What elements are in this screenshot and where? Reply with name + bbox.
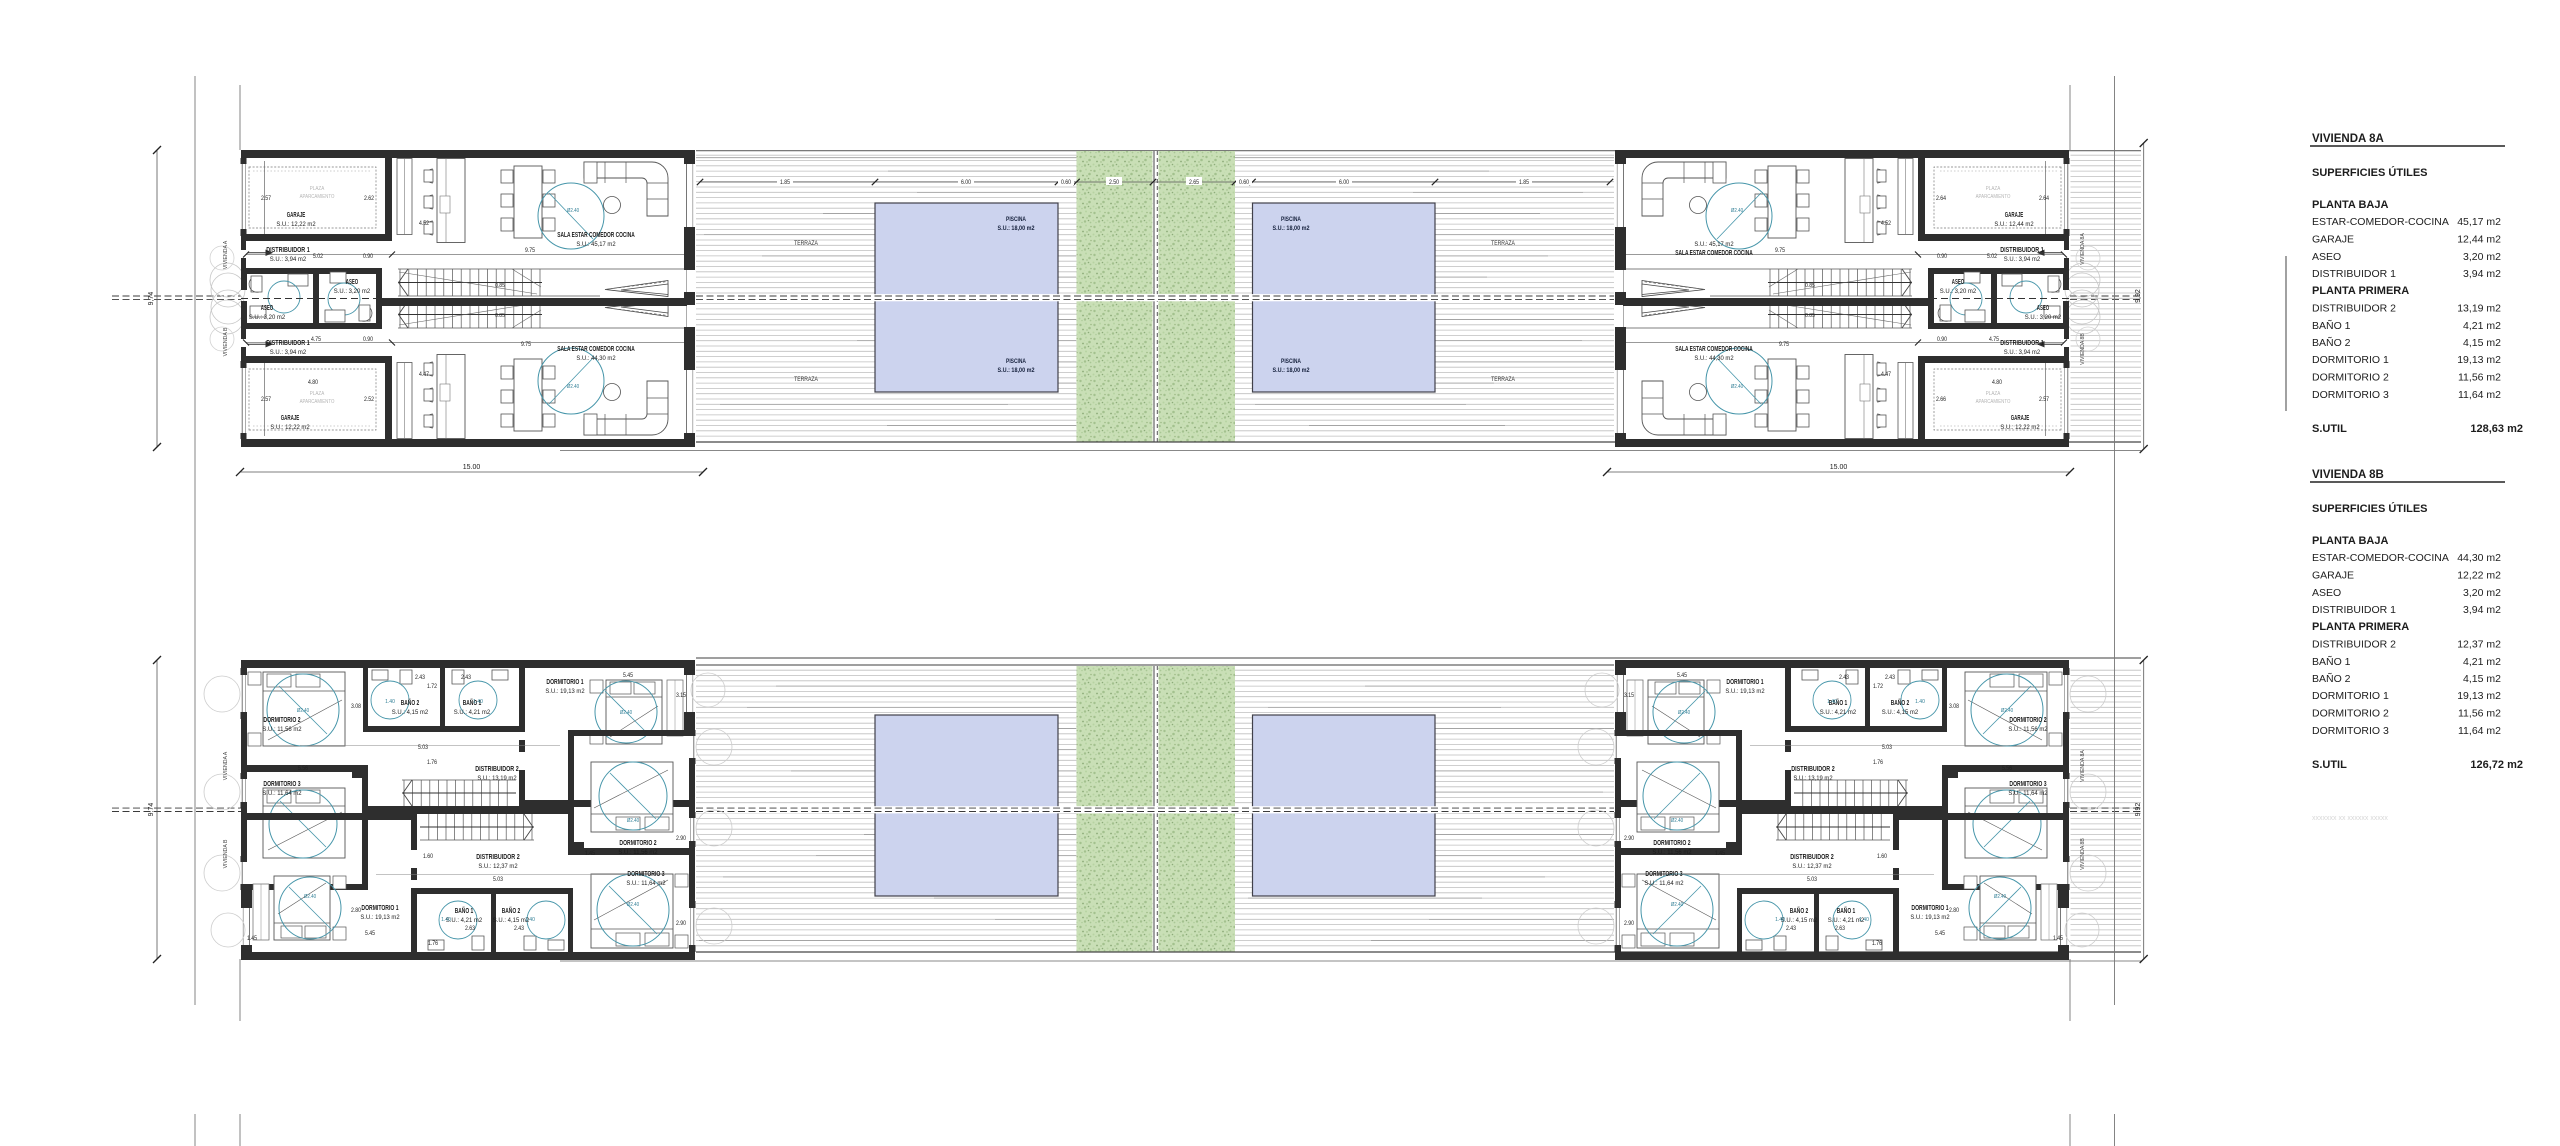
svg-text:2.52: 2.52 xyxy=(364,396,374,403)
svg-text:5.02: 5.02 xyxy=(313,253,323,260)
svg-text:Ø2.40: Ø2.40 xyxy=(627,902,639,908)
svg-text:Ø2.40: Ø2.40 xyxy=(567,384,579,390)
svg-text:4.80: 4.80 xyxy=(1992,379,2002,386)
svg-text:ASEO: ASEO xyxy=(261,305,274,312)
svg-text:VIVIENDA 8A: VIVIENDA 8A xyxy=(2080,750,2086,782)
svg-text:VIVIENDA 8A: VIVIENDA 8A xyxy=(2080,233,2086,265)
svg-text:S.U.: 3,94 m2: S.U.: 3,94 m2 xyxy=(2004,256,2041,263)
svg-text:DISTRIBUIDOR 1: DISTRIBUIDOR 1 xyxy=(266,340,309,347)
svg-text:DISTRIBUIDOR 2: DISTRIBUIDOR 2 xyxy=(1791,766,1834,773)
svg-text:S.U.: 4,15 m2: S.U.: 4,15 m2 xyxy=(1781,917,1818,924)
svg-text:DORMITORIO 2: DORMITORIO 2 xyxy=(1653,840,1690,847)
svg-text:126,72 m2: 126,72 m2 xyxy=(2470,759,2523,771)
svg-text:GARAJE: GARAJE xyxy=(2312,570,2354,582)
svg-text:DORMITORIO 2: DORMITORIO 2 xyxy=(2312,372,2389,384)
svg-text:1.40: 1.40 xyxy=(525,917,535,923)
svg-text:VIVIENDA A: VIVIENDA A xyxy=(223,240,229,269)
svg-text:VIVIENDA B: VIVIENDA B xyxy=(223,327,229,356)
svg-text:Ø2.40: Ø2.40 xyxy=(1731,208,1743,214)
svg-text:4.75: 4.75 xyxy=(311,336,321,343)
svg-text:DISTRIBUIDOR 1: DISTRIBUIDOR 1 xyxy=(2000,247,2043,254)
svg-text:S.U.: 4,21 m2: S.U.: 4,21 m2 xyxy=(454,709,491,716)
svg-text:5.45: 5.45 xyxy=(1677,672,1687,679)
svg-text:S.U.: 4,21 m2: S.U.: 4,21 m2 xyxy=(1820,709,1857,716)
svg-text:S.U.: 11,64 m2: S.U.: 11,64 m2 xyxy=(2008,790,2047,797)
svg-text:2.90: 2.90 xyxy=(676,920,686,927)
svg-text:2.62: 2.62 xyxy=(364,195,374,202)
svg-text:5.03: 5.03 xyxy=(493,876,503,883)
svg-text:SUPERFICIES ÚTILES: SUPERFICIES ÚTILES xyxy=(2312,166,2428,179)
svg-text:2.80: 2.80 xyxy=(1949,907,1959,914)
svg-text:4,21 m2: 4,21 m2 xyxy=(2463,656,2501,668)
svg-text:2.57: 2.57 xyxy=(261,396,271,403)
svg-text:2.43: 2.43 xyxy=(415,674,425,681)
svg-text:ESTAR-COMEDOR-COCINA: ESTAR-COMEDOR-COCINA xyxy=(2312,216,2449,228)
svg-text:2.65: 2.65 xyxy=(1189,179,1199,186)
svg-text:1.40: 1.40 xyxy=(385,699,395,705)
svg-text:S.UTIL: S.UTIL xyxy=(2312,759,2347,771)
svg-text:DORMITORIO 3: DORMITORIO 3 xyxy=(2009,781,2046,788)
svg-text:Ø2.40: Ø2.40 xyxy=(1731,384,1743,390)
svg-text:S.U.: 11,56 m2: S.U.: 11,56 m2 xyxy=(618,849,657,856)
svg-text:1.85: 1.85 xyxy=(1519,179,1529,186)
svg-text:DORMITORIO 1: DORMITORIO 1 xyxy=(1726,679,1763,686)
svg-text:5.03: 5.03 xyxy=(418,744,428,751)
svg-text:4,15 m2: 4,15 m2 xyxy=(2463,673,2501,685)
svg-text:Ø2.40: Ø2.40 xyxy=(1671,902,1683,908)
svg-text:9,74: 9,74 xyxy=(148,803,155,817)
svg-text:Ø2.40: Ø2.40 xyxy=(620,710,632,716)
svg-text:5.45: 5.45 xyxy=(365,930,375,937)
svg-text:9.75: 9.75 xyxy=(521,341,531,348)
svg-text:DISTRIBUIDOR 1: DISTRIBUIDOR 1 xyxy=(2312,268,2396,280)
svg-text:VIVIENDA 8B: VIVIENDA 8B xyxy=(2080,838,2086,870)
svg-text:DORMITORIO 1: DORMITORIO 1 xyxy=(2312,690,2389,702)
svg-text:3.15: 3.15 xyxy=(676,692,686,699)
svg-text:DORMITORIO 1: DORMITORIO 1 xyxy=(1911,905,1948,912)
svg-text:2.90: 2.90 xyxy=(1624,835,1634,842)
svg-text:12,37 m2: 12,37 m2 xyxy=(2457,639,2501,651)
svg-text:2.64: 2.64 xyxy=(1936,195,1946,202)
svg-text:ASEO: ASEO xyxy=(1952,279,1965,286)
svg-text:S.U.: 11,64 m2: S.U.: 11,64 m2 xyxy=(626,880,665,887)
svg-text:PISCINA: PISCINA xyxy=(1006,216,1026,223)
svg-text:44,30 m2: 44,30 m2 xyxy=(2457,552,2501,564)
svg-text:9,92: 9,92 xyxy=(2135,803,2142,817)
svg-text:DORMITORIO 2: DORMITORIO 2 xyxy=(263,717,300,724)
svg-text:S.U.: 3,94 m2: S.U.: 3,94 m2 xyxy=(270,349,307,356)
svg-text:ASEO: ASEO xyxy=(2037,305,2050,312)
svg-text:Ø2.40: Ø2.40 xyxy=(297,708,309,714)
svg-text:DISTRIBUIDOR 2: DISTRIBUIDOR 2 xyxy=(1790,854,1833,861)
svg-text:BAÑO 1: BAÑO 1 xyxy=(2312,655,2351,668)
svg-text:DORMITORIO 2: DORMITORIO 2 xyxy=(2009,717,2046,724)
svg-text:2.50: 2.50 xyxy=(1109,179,1119,186)
svg-text:BAÑO 2: BAÑO 2 xyxy=(1891,698,1910,707)
svg-text:5.56: 5.56 xyxy=(298,765,308,772)
svg-text:1.40: 1.40 xyxy=(1915,699,1925,705)
svg-text:GARAJE: GARAJE xyxy=(2011,415,2030,422)
svg-text:9.75: 9.75 xyxy=(1779,341,1789,348)
svg-text:BAÑO 1: BAÑO 1 xyxy=(455,906,474,915)
svg-text:3,94 m2: 3,94 m2 xyxy=(2463,604,2501,616)
svg-text:S.U.: 12,37 m2: S.U.: 12,37 m2 xyxy=(1792,863,1831,870)
svg-text:S.U.: 12,22 m2: S.U.: 12,22 m2 xyxy=(276,221,315,228)
svg-text:4.80: 4.80 xyxy=(308,379,318,386)
svg-text:1.40: 1.40 xyxy=(1775,917,1785,923)
svg-text:S.U.: 11,56 m2: S.U.: 11,56 m2 xyxy=(1652,849,1691,856)
svg-text:5.56: 5.56 xyxy=(2002,765,2012,772)
svg-text:2.43: 2.43 xyxy=(1839,674,1849,681)
svg-text:TERRAZA: TERRAZA xyxy=(794,376,819,383)
svg-text:S.U.: 3,20 m2: S.U.: 3,20 m2 xyxy=(1940,288,1977,295)
svg-text:11,64 m2: 11,64 m2 xyxy=(2458,725,2501,737)
svg-text:6.00: 6.00 xyxy=(961,179,971,186)
svg-text:GARAJE: GARAJE xyxy=(281,415,300,422)
svg-text:DISTRIBUIDOR 2: DISTRIBUIDOR 2 xyxy=(2312,303,2396,315)
svg-text:GARAJE: GARAJE xyxy=(2312,234,2354,246)
svg-text:ASEO: ASEO xyxy=(346,279,359,286)
svg-text:DISTRIBUIDOR 2: DISTRIBUIDOR 2 xyxy=(476,854,519,861)
svg-text:1.60: 1.60 xyxy=(423,853,433,860)
svg-text:S.U.: 18,00 m2: S.U.: 18,00 m2 xyxy=(1272,367,1309,374)
svg-text:BAÑO 2: BAÑO 2 xyxy=(401,698,420,707)
svg-text:TERRAZA: TERRAZA xyxy=(1491,240,1516,247)
svg-text:S.U.: 4,21 m2: S.U.: 4,21 m2 xyxy=(446,917,483,924)
svg-text:Ø2.40: Ø2.40 xyxy=(1671,818,1683,824)
svg-text:DORMITORIO 1: DORMITORIO 1 xyxy=(2312,354,2389,366)
svg-text:1.45: 1.45 xyxy=(585,850,595,857)
svg-text:4.75: 4.75 xyxy=(1989,336,1999,343)
svg-text:1.72: 1.72 xyxy=(1873,683,1883,690)
svg-text:BAÑO 2: BAÑO 2 xyxy=(2312,336,2351,349)
svg-text:4.47: 4.47 xyxy=(1881,371,1891,378)
svg-text:4.47: 4.47 xyxy=(419,371,429,378)
svg-text:S.U.: 4,15 m2: S.U.: 4,15 m2 xyxy=(493,917,530,924)
svg-text:S.U.: 11,64 m2: S.U.: 11,64 m2 xyxy=(1644,880,1683,887)
svg-text:S.UTIL: S.UTIL xyxy=(2312,423,2347,435)
svg-text:1.40: 1.40 xyxy=(473,699,483,705)
svg-text:15.00: 15.00 xyxy=(1830,464,1848,471)
svg-text:11,56 m2: 11,56 m2 xyxy=(2458,372,2501,384)
svg-text:4,15 m2: 4,15 m2 xyxy=(2463,337,2501,349)
svg-text:ASEO: ASEO xyxy=(2312,587,2341,599)
svg-text:S.U.: 44,30 m2: S.U.: 44,30 m2 xyxy=(576,355,615,362)
svg-text:BAÑO 1: BAÑO 1 xyxy=(1837,906,1856,915)
svg-text:128,63 m2: 128,63 m2 xyxy=(2470,423,2523,435)
svg-text:11,64 m2: 11,64 m2 xyxy=(2458,389,2501,401)
svg-text:S.U.: 18,00 m2: S.U.: 18,00 m2 xyxy=(1272,225,1309,232)
svg-text:9.75: 9.75 xyxy=(525,247,535,254)
svg-text:S.U.: 44,30 m2: S.U.: 44,30 m2 xyxy=(1694,355,1733,362)
svg-text:3.08: 3.08 xyxy=(351,703,361,710)
svg-text:2.80: 2.80 xyxy=(351,907,361,914)
svg-text:DISTRIBUIDOR 1: DISTRIBUIDOR 1 xyxy=(266,247,309,254)
svg-text:2.57: 2.57 xyxy=(261,195,271,202)
svg-text:ESTAR-COMEDOR-COCINA: ESTAR-COMEDOR-COCINA xyxy=(2312,552,2449,564)
svg-text:APARCAMIENTO: APARCAMIENTO xyxy=(300,399,335,405)
svg-text:4.52: 4.52 xyxy=(419,220,429,227)
svg-text:13,19 m2: 13,19 m2 xyxy=(2457,303,2501,315)
svg-text:PLAZA: PLAZA xyxy=(310,186,325,192)
svg-text:S.U.: 18,00 m2: S.U.: 18,00 m2 xyxy=(997,225,1034,232)
svg-text:1.45: 1.45 xyxy=(1715,850,1725,857)
svg-text:5.03: 5.03 xyxy=(1882,744,1892,751)
svg-text:0.60: 0.60 xyxy=(1061,179,1071,186)
svg-text:0.85: 0.85 xyxy=(1805,313,1815,319)
svg-text:0.90: 0.90 xyxy=(1937,253,1947,260)
svg-text:S.U.: 3,20 m2: S.U.: 3,20 m2 xyxy=(2025,314,2062,321)
svg-text:APARCAMIENTO: APARCAMIENTO xyxy=(300,194,335,200)
svg-text:S.U.: 12,37 m2: S.U.: 12,37 m2 xyxy=(478,863,517,870)
svg-text:PISCINA: PISCINA xyxy=(1281,216,1301,223)
svg-text:4.52: 4.52 xyxy=(1881,220,1891,227)
svg-text:DORMITORIO 2: DORMITORIO 2 xyxy=(2312,708,2389,720)
svg-text:GARAJE: GARAJE xyxy=(287,212,306,219)
svg-text:VIVIENDA A: VIVIENDA A xyxy=(223,751,229,780)
svg-text:VIVIENDA 8B: VIVIENDA 8B xyxy=(2080,333,2086,365)
svg-text:PLAZA: PLAZA xyxy=(1986,186,2001,192)
svg-text:0.90: 0.90 xyxy=(1937,336,1947,343)
svg-text:PLANTA BAJA: PLANTA BAJA xyxy=(2312,535,2388,547)
svg-text:9.75: 9.75 xyxy=(1775,247,1785,254)
svg-text:1.45: 1.45 xyxy=(247,935,257,942)
svg-text:9,74: 9,74 xyxy=(148,292,155,306)
svg-text:1.40: 1.40 xyxy=(1859,917,1869,923)
svg-text:S.U.: 12,22 m2: S.U.: 12,22 m2 xyxy=(270,424,309,431)
svg-text:2.66: 2.66 xyxy=(1936,396,1946,403)
svg-text:Ø2.40: Ø2.40 xyxy=(627,818,639,824)
svg-text:0.90: 0.90 xyxy=(363,253,373,260)
svg-text:15.00: 15.00 xyxy=(463,464,481,471)
svg-text:DORMITORIO 3: DORMITORIO 3 xyxy=(263,781,300,788)
svg-text:2.43: 2.43 xyxy=(461,674,471,681)
svg-text:SALA ESTAR COMEDOR COCINA: SALA ESTAR COMEDOR COCINA xyxy=(1675,346,1753,353)
svg-text:1.76: 1.76 xyxy=(1872,940,1882,947)
svg-text:Ø2.40: Ø2.40 xyxy=(2001,708,2013,714)
svg-text:11,56 m2: 11,56 m2 xyxy=(2458,708,2501,720)
svg-text:1.72: 1.72 xyxy=(427,683,437,690)
svg-text:2.90: 2.90 xyxy=(1624,920,1634,927)
svg-text:PLAZA: PLAZA xyxy=(1986,391,2001,397)
svg-text:3.08: 3.08 xyxy=(1949,703,1959,710)
svg-text:xxxxxxx xx xxxxxx xxxxx: xxxxxxx xx xxxxxx xxxxx xyxy=(2312,815,2388,822)
svg-text:2.43: 2.43 xyxy=(1786,925,1796,932)
svg-text:3,20 m2: 3,20 m2 xyxy=(2463,251,2501,263)
svg-text:DORMITORIO 1: DORMITORIO 1 xyxy=(546,679,583,686)
svg-text:45,17 m2: 45,17 m2 xyxy=(2457,216,2501,228)
svg-text:PLAZA: PLAZA xyxy=(310,391,325,397)
svg-text:0.60: 0.60 xyxy=(1239,179,1249,186)
svg-text:TERRAZA: TERRAZA xyxy=(1491,376,1516,383)
svg-text:S.U.: 11,56 m2: S.U.: 11,56 m2 xyxy=(2008,726,2047,733)
svg-text:DORMITORIO 3: DORMITORIO 3 xyxy=(2312,389,2389,401)
svg-text:SUPERFICIES ÚTILES: SUPERFICIES ÚTILES xyxy=(2312,502,2428,515)
svg-text:0.85: 0.85 xyxy=(495,313,505,319)
svg-text:Ø2.40: Ø2.40 xyxy=(567,208,579,214)
svg-text:PLANTA PRIMERA: PLANTA PRIMERA xyxy=(2312,621,2409,633)
svg-text:S.U.: 11,56 m2: S.U.: 11,56 m2 xyxy=(262,726,301,733)
svg-text:1.40: 1.40 xyxy=(441,917,451,923)
svg-text:SALA ESTAR COMEDOR COCINA: SALA ESTAR COMEDOR COCINA xyxy=(557,346,635,353)
svg-text:DISTRIBUIDOR 1: DISTRIBUIDOR 1 xyxy=(2000,340,2043,347)
svg-text:SALA ESTAR COMEDOR COCINA: SALA ESTAR COMEDOR COCINA xyxy=(557,232,635,239)
svg-text:S.U.: 13,19 m2: S.U.: 13,19 m2 xyxy=(1793,775,1832,782)
svg-text:19,13 m2: 19,13 m2 xyxy=(2457,354,2501,366)
svg-text:S.U.: 11,64 m2: S.U.: 11,64 m2 xyxy=(262,790,301,797)
svg-text:PLANTA BAJA: PLANTA BAJA xyxy=(2312,199,2388,211)
svg-text:S.U.: 19,13 m2: S.U.: 19,13 m2 xyxy=(1910,914,1949,921)
svg-text:BAÑO 2: BAÑO 2 xyxy=(1790,906,1809,915)
svg-text:2.57: 2.57 xyxy=(2039,396,2049,403)
svg-text:9,92: 9,92 xyxy=(2135,289,2142,303)
svg-text:2.63: 2.63 xyxy=(1835,925,1845,932)
svg-text:5.02: 5.02 xyxy=(1987,253,1997,260)
svg-text:DISTRIBUIDOR 1: DISTRIBUIDOR 1 xyxy=(2312,604,2396,616)
svg-text:S.U.: 12,44 m2: S.U.: 12,44 m2 xyxy=(1994,221,2033,228)
svg-text:S.U.: 45,17 m2: S.U.: 45,17 m2 xyxy=(1694,241,1733,248)
svg-text:S.U.: 12,22 m2: S.U.: 12,22 m2 xyxy=(2000,424,2039,431)
svg-text:5.45: 5.45 xyxy=(1935,930,1945,937)
svg-text:APARCAMIENTO: APARCAMIENTO xyxy=(1976,194,2011,200)
svg-text:VIVIENDA 8A: VIVIENDA 8A xyxy=(2312,133,2384,145)
svg-text:S.U.: 18,00 m2: S.U.: 18,00 m2 xyxy=(997,367,1034,374)
svg-text:DISTRIBUIDOR 2: DISTRIBUIDOR 2 xyxy=(475,766,518,773)
svg-text:BAÑO 1: BAÑO 1 xyxy=(2312,319,2351,332)
svg-text:DORMITORIO 2: DORMITORIO 2 xyxy=(619,840,656,847)
svg-text:TERRAZA: TERRAZA xyxy=(794,240,819,247)
svg-text:1.40: 1.40 xyxy=(1827,699,1837,705)
svg-text:19,13 m2: 19,13 m2 xyxy=(2457,690,2501,702)
svg-text:S.U.: 3,20 m2: S.U.: 3,20 m2 xyxy=(249,314,286,321)
svg-text:1.45: 1.45 xyxy=(2053,935,2063,942)
svg-text:Ø2.40: Ø2.40 xyxy=(1678,710,1690,716)
svg-text:VIVIENDA 8B: VIVIENDA 8B xyxy=(2312,469,2384,481)
svg-text:S.U.: 3,94 m2: S.U.: 3,94 m2 xyxy=(2004,349,2041,356)
svg-text:DORMITORIO 3: DORMITORIO 3 xyxy=(1645,871,1682,878)
svg-text:1.76: 1.76 xyxy=(428,940,438,947)
svg-text:0.85: 0.85 xyxy=(495,283,505,289)
svg-text:1.76: 1.76 xyxy=(427,759,437,766)
svg-text:S.U.: 3,20 m2: S.U.: 3,20 m2 xyxy=(334,288,371,295)
svg-text:PISCINA: PISCINA xyxy=(1281,358,1301,365)
svg-text:4,21 m2: 4,21 m2 xyxy=(2463,320,2501,332)
svg-text:S.U.: 4,15 m2: S.U.: 4,15 m2 xyxy=(1882,709,1919,716)
svg-text:1.76: 1.76 xyxy=(1873,759,1883,766)
svg-text:2.43: 2.43 xyxy=(1885,674,1895,681)
svg-text:0.90: 0.90 xyxy=(363,336,373,343)
svg-text:1.60: 1.60 xyxy=(1877,853,1887,860)
svg-text:5.03: 5.03 xyxy=(1807,876,1817,883)
svg-text:3.15: 3.15 xyxy=(1624,692,1634,699)
svg-text:2.64: 2.64 xyxy=(2039,195,2049,202)
svg-text:DORMITORIO 3: DORMITORIO 3 xyxy=(2312,725,2389,737)
svg-text:3,94 m2: 3,94 m2 xyxy=(2463,268,2501,280)
svg-text:S.U.: 45,17 m2: S.U.: 45,17 m2 xyxy=(576,241,615,248)
svg-text:0.85: 0.85 xyxy=(1805,283,1815,289)
svg-text:S.U.: 19,13 m2: S.U.: 19,13 m2 xyxy=(1725,688,1764,695)
svg-text:S.U.: 13,19 m2: S.U.: 13,19 m2 xyxy=(477,775,516,782)
svg-text:S.U.: 3,94 m2: S.U.: 3,94 m2 xyxy=(270,256,307,263)
svg-text:SALA ESTAR COMEDOR COCINA: SALA ESTAR COMEDOR COCINA xyxy=(1675,250,1753,257)
svg-text:6.00: 6.00 xyxy=(1339,179,1349,186)
svg-text:PISCINA: PISCINA xyxy=(1006,358,1026,365)
svg-text:2.90: 2.90 xyxy=(676,835,686,842)
svg-text:BAÑO 2: BAÑO 2 xyxy=(2312,672,2351,685)
svg-text:GARAJE: GARAJE xyxy=(2005,212,2024,219)
svg-text:12,22 m2: 12,22 m2 xyxy=(2457,570,2501,582)
svg-text:DISTRIBUIDOR 2: DISTRIBUIDOR 2 xyxy=(2312,639,2396,651)
svg-text:3,20 m2: 3,20 m2 xyxy=(2463,587,2501,599)
svg-text:DORMITORIO 1: DORMITORIO 1 xyxy=(361,905,398,912)
svg-text:S.U.: 19,13 m2: S.U.: 19,13 m2 xyxy=(545,688,584,695)
svg-text:12,44 m2: 12,44 m2 xyxy=(2457,234,2501,246)
svg-text:DORMITORIO 3: DORMITORIO 3 xyxy=(627,871,664,878)
svg-text:2.43: 2.43 xyxy=(514,925,524,932)
svg-text:S.U.: 19,13 m2: S.U.: 19,13 m2 xyxy=(360,914,399,921)
svg-text:5.45: 5.45 xyxy=(623,672,633,679)
svg-text:VIVIENDA B: VIVIENDA B xyxy=(223,839,229,868)
svg-text:BAÑO 2: BAÑO 2 xyxy=(502,906,521,915)
svg-text:APARCAMIENTO: APARCAMIENTO xyxy=(1976,399,2011,405)
svg-text:ASEO: ASEO xyxy=(2312,251,2341,263)
svg-text:Ø2.40: Ø2.40 xyxy=(1994,894,2006,900)
svg-text:1.85: 1.85 xyxy=(780,179,790,186)
svg-text:PLANTA PRIMERA: PLANTA PRIMERA xyxy=(2312,285,2409,297)
svg-text:Ø2.40: Ø2.40 xyxy=(304,894,316,900)
svg-text:2.63: 2.63 xyxy=(465,925,475,932)
svg-text:S.U.: 4,15 m2: S.U.: 4,15 m2 xyxy=(392,709,429,716)
